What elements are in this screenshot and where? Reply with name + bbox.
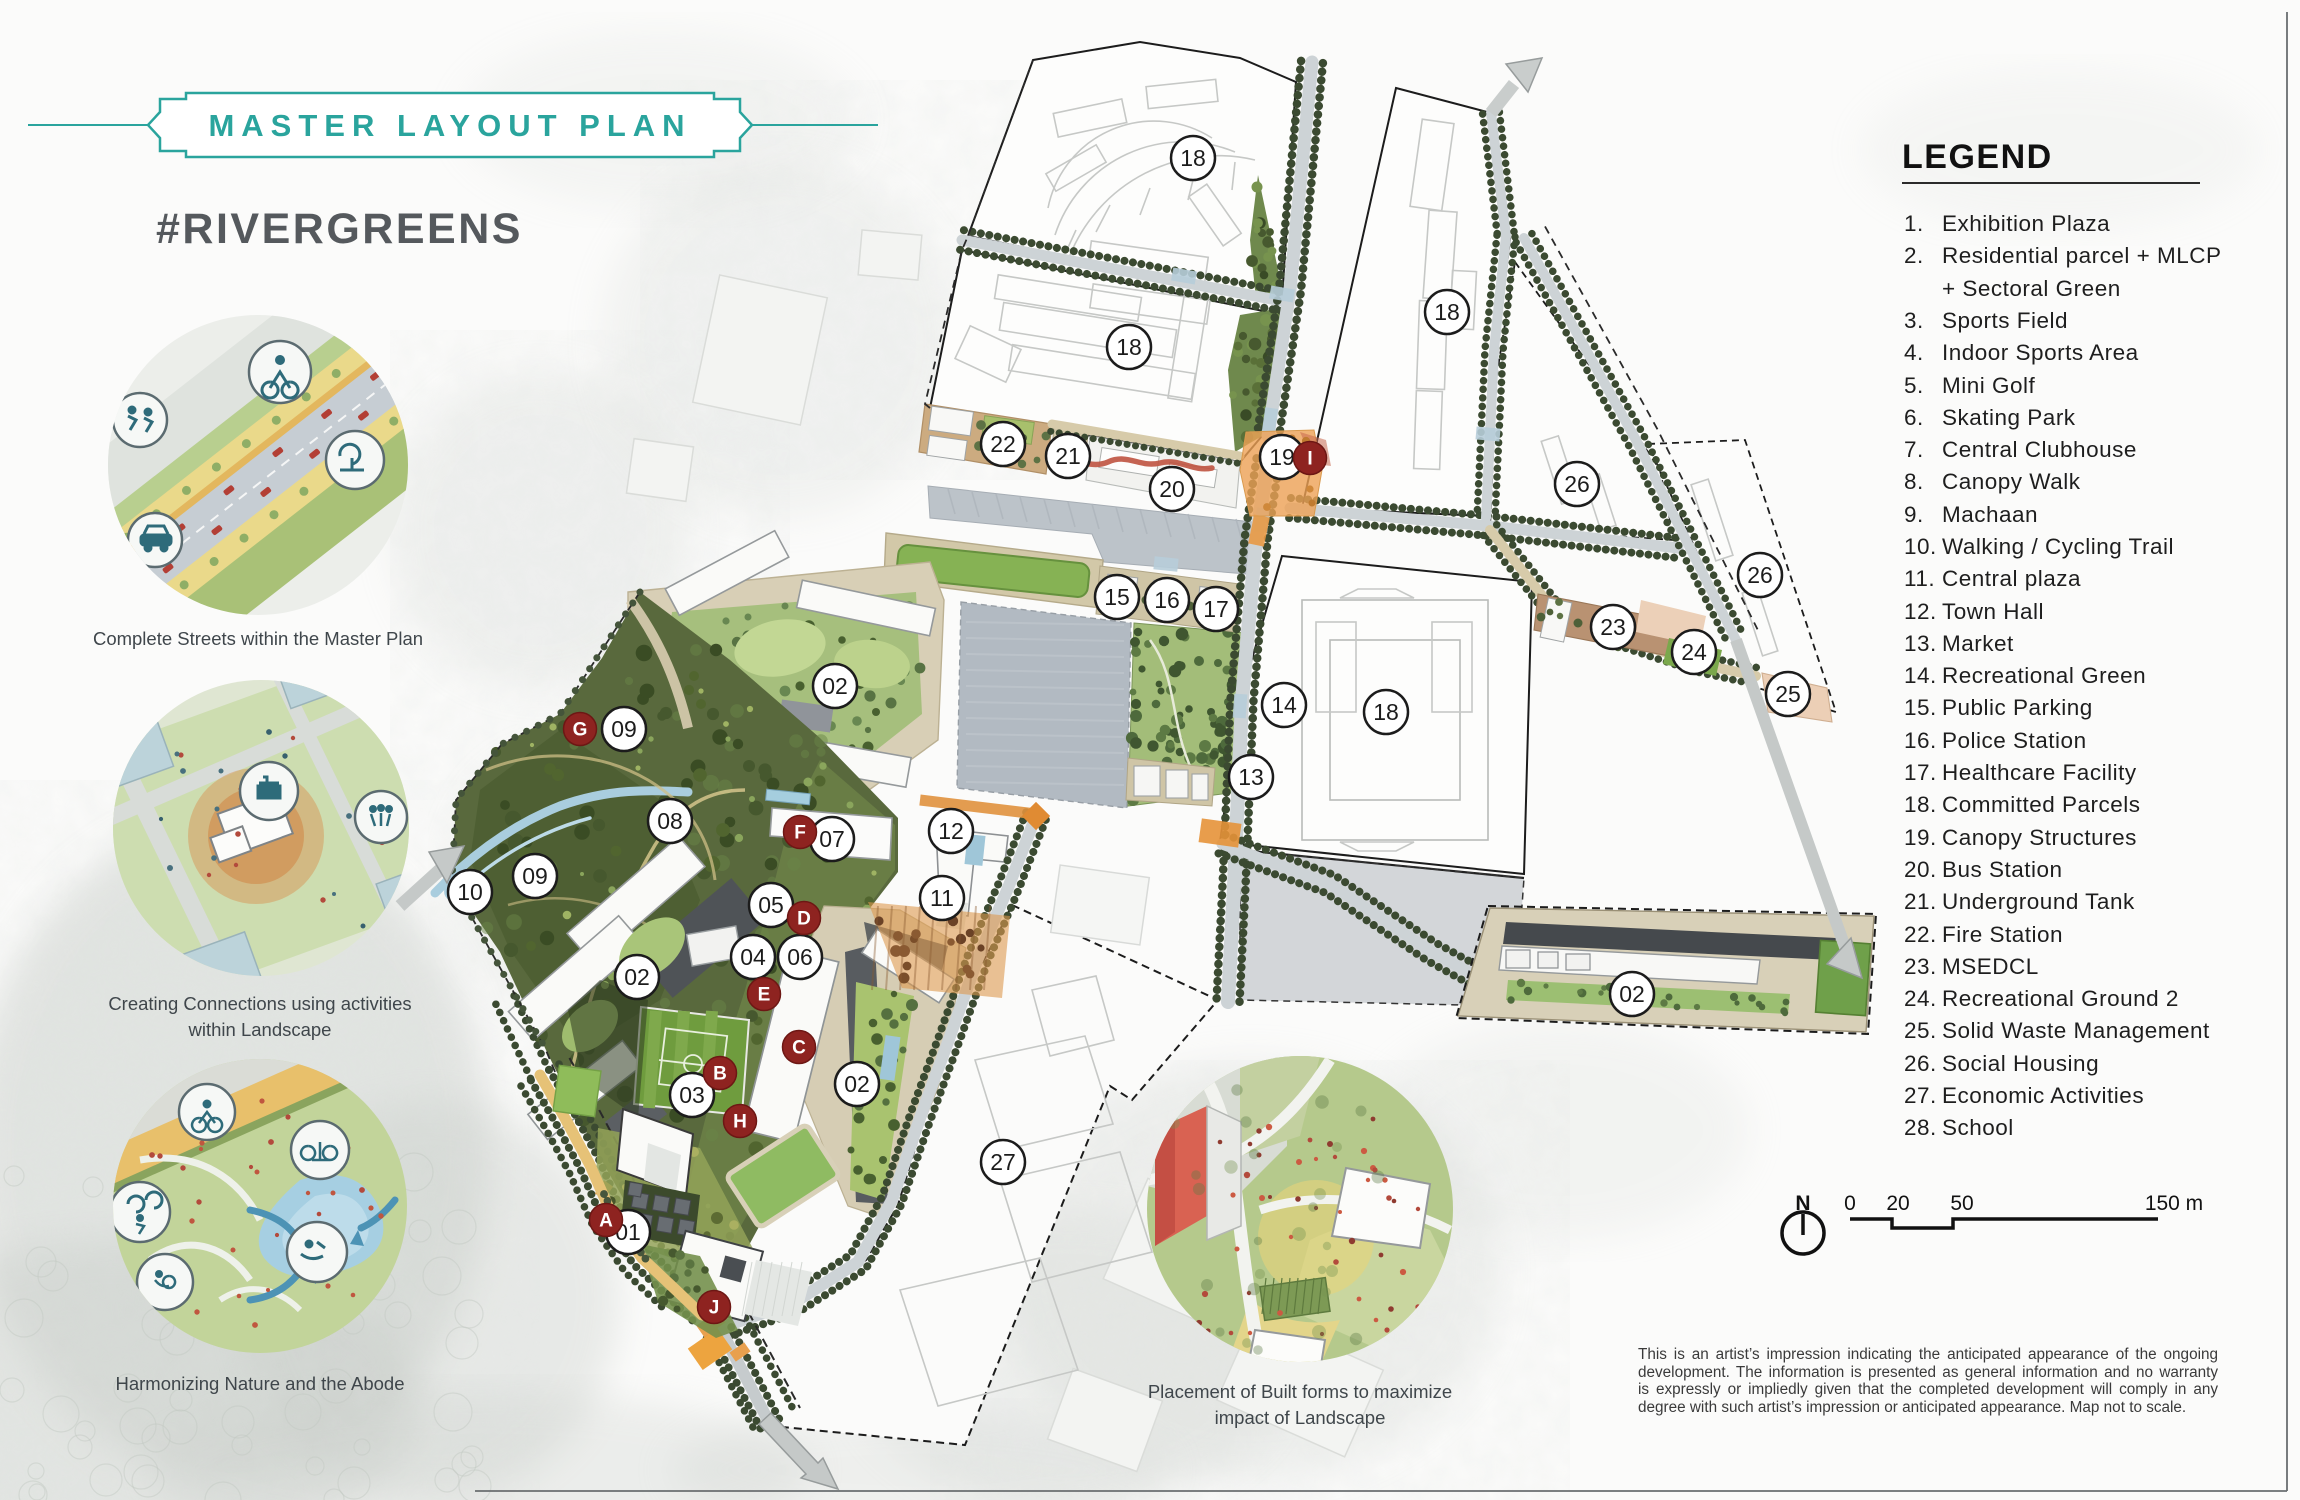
svg-text:6.: 6. [1904, 405, 1924, 430]
svg-text:Town Hall: Town Hall [1942, 599, 2044, 624]
svg-text:Exhibition Plaza: Exhibition Plaza [1942, 211, 2110, 236]
svg-text:15.: 15. [1904, 695, 1937, 720]
svg-text:Market: Market [1942, 631, 2014, 656]
svg-text:#RIVERGREENS: #RIVERGREENS [156, 205, 523, 253]
svg-text:Harmonizing Nature and the Abo: Harmonizing Nature and the Abode [116, 1373, 405, 1394]
svg-text:B: B [713, 1064, 727, 1085]
svg-text:Recreational Ground 2: Recreational Ground 2 [1942, 986, 2179, 1011]
svg-text:06: 06 [787, 944, 813, 970]
svg-text:Fire Station: Fire Station [1942, 922, 2063, 947]
svg-text:Healthcare Facility: Healthcare Facility [1942, 760, 2137, 785]
svg-text:12.: 12. [1904, 599, 1937, 624]
svg-text:03: 03 [679, 1082, 705, 1108]
svg-text:Sports Field: Sports Field [1942, 308, 2068, 333]
svg-text:22.: 22. [1904, 922, 1937, 947]
svg-text:24.: 24. [1904, 986, 1937, 1011]
svg-text:G: G [573, 720, 588, 741]
svg-text:Central plaza: Central plaza [1942, 566, 2081, 591]
svg-text:26: 26 [1564, 471, 1590, 497]
svg-text:14: 14 [1271, 692, 1297, 718]
svg-text:3.: 3. [1904, 308, 1924, 333]
svg-text:23.: 23. [1904, 954, 1937, 979]
svg-text:Skating Park: Skating Park [1942, 405, 2076, 430]
svg-text:02: 02 [1619, 981, 1645, 1007]
svg-text:27.: 27. [1904, 1083, 1937, 1108]
svg-text:19.: 19. [1904, 825, 1937, 850]
svg-text:7.: 7. [1904, 437, 1924, 462]
svg-text:Social Housing: Social Housing [1942, 1051, 2099, 1076]
svg-text:14.: 14. [1904, 663, 1937, 688]
svg-text:21: 21 [1055, 443, 1081, 469]
svg-text:10: 10 [457, 879, 483, 905]
svg-text:19: 19 [1269, 444, 1295, 470]
svg-text:18: 18 [1116, 334, 1142, 360]
svg-text:Residential parcel + MLCP: Residential parcel + MLCP [1942, 243, 2222, 268]
svg-text:26.: 26. [1904, 1051, 1937, 1076]
svg-text:MASTER LAYOUT PLAN: MASTER LAYOUT PLAN [208, 108, 691, 143]
svg-text:Committed Parcels: Committed Parcels [1942, 792, 2141, 817]
svg-text:25: 25 [1775, 681, 1801, 707]
svg-text:1.: 1. [1904, 211, 1924, 236]
svg-text:Canopy Structures: Canopy Structures [1942, 825, 2137, 850]
svg-text:21.: 21. [1904, 889, 1937, 914]
svg-text:Central Clubhouse: Central Clubhouse [1942, 437, 2137, 462]
svg-text:11.: 11. [1904, 566, 1935, 591]
svg-text:27: 27 [990, 1149, 1016, 1175]
svg-text:0: 0 [1844, 1192, 1856, 1215]
svg-text:09: 09 [522, 863, 548, 889]
svg-text:17: 17 [1203, 596, 1229, 622]
svg-text:24: 24 [1681, 639, 1707, 665]
svg-text:8.: 8. [1904, 469, 1924, 494]
svg-text:13.: 13. [1904, 631, 1937, 656]
svg-text:18: 18 [1180, 145, 1206, 171]
svg-text:08: 08 [657, 808, 683, 834]
svg-text:09: 09 [611, 716, 637, 742]
svg-text:4.: 4. [1904, 340, 1924, 365]
svg-text:Solid Waste Management: Solid Waste Management [1942, 1018, 2210, 1043]
svg-text:Underground Tank: Underground Tank [1942, 889, 2135, 914]
svg-text:9.: 9. [1904, 502, 1924, 527]
svg-text:02: 02 [624, 964, 650, 990]
svg-text:Walking / Cycling Trail: Walking / Cycling Trail [1942, 534, 2174, 559]
svg-text:I: I [1307, 449, 1312, 470]
svg-text:17.: 17. [1904, 760, 1937, 785]
svg-text:E: E [758, 985, 771, 1006]
svg-text:Mini Golf: Mini Golf [1942, 373, 2036, 398]
svg-text:+ Sectoral Green: + Sectoral Green [1942, 276, 2121, 301]
svg-text:C: C [792, 1038, 806, 1059]
svg-text:50: 50 [1950, 1192, 1973, 1215]
svg-text:23: 23 [1600, 614, 1626, 640]
svg-text:11: 11 [930, 885, 954, 911]
svg-text:16.: 16. [1904, 728, 1937, 753]
svg-text:18: 18 [1434, 299, 1460, 325]
svg-text:18.: 18. [1904, 792, 1937, 817]
svg-text:impact of Landscape: impact of Landscape [1215, 1407, 1386, 1428]
svg-text:05: 05 [758, 892, 784, 918]
svg-text:LEGEND: LEGEND [1902, 138, 2053, 176]
svg-text:Machaan: Machaan [1942, 502, 2038, 527]
svg-text:H: H [733, 1112, 747, 1133]
svg-text:MSEDCL: MSEDCL [1942, 954, 2039, 979]
svg-text:25.: 25. [1904, 1018, 1937, 1043]
svg-text:02: 02 [822, 673, 848, 699]
svg-text:20.: 20. [1904, 857, 1937, 882]
svg-text:D: D [797, 909, 811, 930]
svg-text:26: 26 [1747, 562, 1773, 588]
svg-text:22: 22 [990, 431, 1016, 457]
svg-text:150 m: 150 m [2145, 1192, 2203, 1215]
svg-text:15: 15 [1104, 584, 1130, 610]
svg-text:02: 02 [844, 1071, 870, 1097]
svg-text:Bus Station: Bus Station [1942, 857, 2063, 882]
svg-text:Complete Streets within the Ma: Complete Streets within the Master Plan [93, 628, 423, 649]
svg-text:10.: 10. [1904, 534, 1937, 559]
svg-text:Recreational Green: Recreational Green [1942, 663, 2146, 688]
svg-text:J: J [709, 1298, 720, 1319]
svg-text:5.: 5. [1904, 373, 1924, 398]
svg-text:2.: 2. [1904, 243, 1924, 268]
svg-text:Public Parking: Public Parking [1942, 695, 2093, 720]
svg-text:18: 18 [1373, 699, 1399, 725]
svg-text:Placement of Built forms to ma: Placement of Built forms to maximize [1148, 1381, 1452, 1402]
svg-text:16: 16 [1154, 587, 1180, 613]
svg-text:13: 13 [1238, 764, 1264, 790]
svg-text:28.: 28. [1904, 1115, 1937, 1140]
svg-text:F: F [794, 823, 806, 844]
svg-text:20: 20 [1159, 476, 1185, 502]
svg-text:12: 12 [938, 818, 964, 844]
svg-text:07: 07 [819, 826, 845, 852]
svg-text:Indoor Sports Area: Indoor Sports Area [1942, 340, 2139, 365]
svg-text:20: 20 [1886, 1192, 1909, 1215]
svg-text:04: 04 [740, 944, 766, 970]
svg-text:A: A [599, 1211, 613, 1232]
svg-text:Economic Activities: Economic Activities [1942, 1083, 2144, 1108]
svg-text:Canopy Walk: Canopy Walk [1942, 469, 2081, 494]
svg-text:within Landscape: within Landscape [188, 1019, 332, 1040]
svg-text:School: School [1942, 1115, 2014, 1140]
svg-text:Police Station: Police Station [1942, 728, 2087, 753]
svg-text:Creating Connections using act: Creating Connections using activities [108, 993, 411, 1014]
